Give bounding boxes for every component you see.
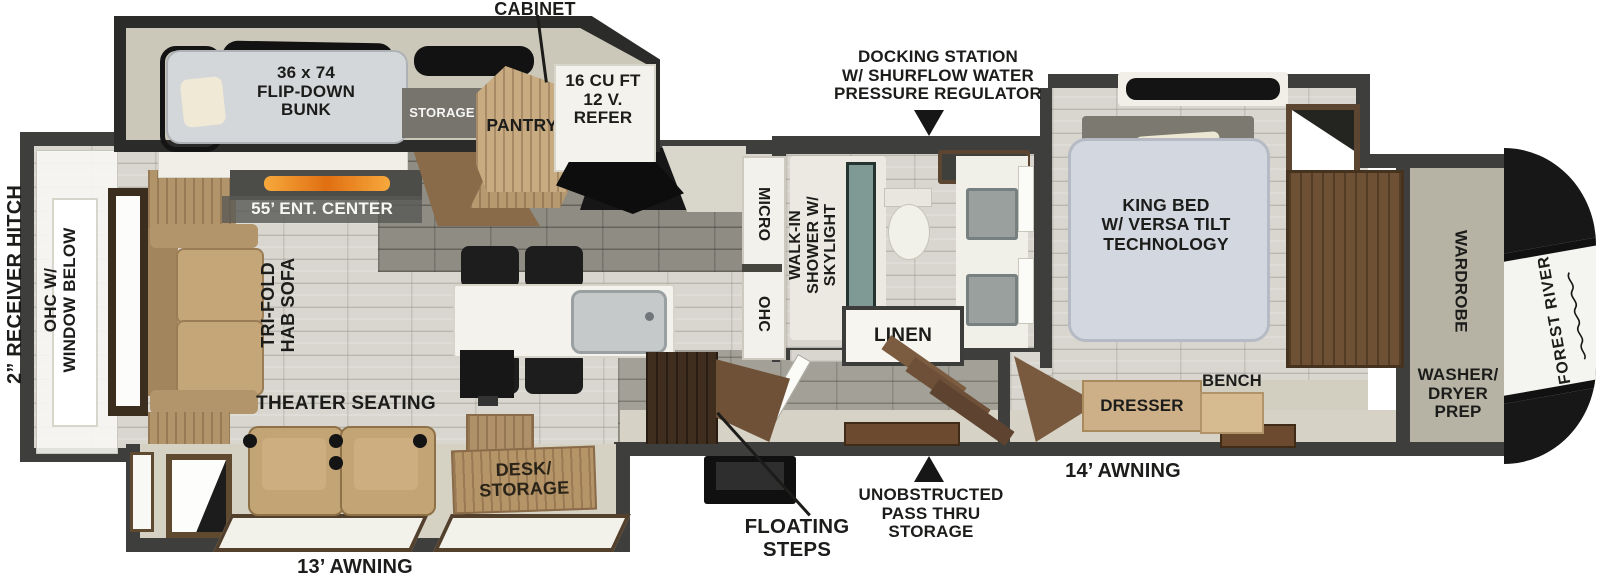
- left-window-pane: [116, 196, 140, 406]
- cupholder: [329, 434, 343, 448]
- awning-13-label: 13’ AWNING: [280, 556, 430, 580]
- bench-label: BENCH: [1186, 372, 1278, 390]
- refrigerator-label: 16 CU FT 12 V. REFER: [558, 72, 648, 132]
- wardrobe-label: WARDROBE: [1442, 196, 1478, 366]
- sofa-back: [148, 228, 178, 396]
- cupholder: [329, 456, 343, 470]
- bath-window: [1018, 166, 1034, 232]
- sofa-arm-bottom: [150, 390, 258, 414]
- bunk-label: 36 x 74 FLIP-DOWN BUNK: [232, 64, 380, 126]
- desk-storage: DESK/ STORAGE: [451, 446, 597, 515]
- floating-steps-wood: [646, 352, 718, 444]
- seat-cushion: [262, 438, 326, 490]
- ohc-window-label: OHC W/ WINDOW BELOW: [42, 198, 98, 402]
- bedroom-left-wall: [1040, 88, 1052, 368]
- micro-label: MICRO: [746, 166, 780, 262]
- bedroom-top-window: [1126, 78, 1280, 100]
- cupholder: [413, 434, 427, 448]
- bath-window: [1018, 258, 1034, 324]
- ent-center-label: 55’ ENT. CENTER: [222, 196, 422, 223]
- cupholder: [243, 434, 257, 448]
- floorplan-stage: OHC W/ WINDOW BELOW TRI-FOLD HAB SOFA 55…: [0, 0, 1600, 583]
- dresser: DRESSER: [1082, 380, 1202, 432]
- shower-label: WALK-IN SHOWER W/ SKYLIGHT: [787, 160, 853, 330]
- cabinet-below-sofa: [148, 412, 230, 446]
- seat-cushion: [354, 438, 418, 490]
- window-sash: [172, 460, 226, 532]
- awning-14-label: 14’ AWNING: [1038, 460, 1208, 486]
- toilet-bowl: [888, 204, 930, 260]
- docking-station-label: DOCKING STATION W/ SHURFLOW WATER PRESSU…: [818, 48, 1058, 108]
- docking-arrow-icon: [914, 110, 944, 136]
- desk-monitor: [460, 350, 514, 398]
- sofa-cushion: [176, 248, 264, 324]
- sofa-cushion: [176, 320, 264, 396]
- vanity-sink: [966, 188, 1018, 240]
- passthru-hatch: [844, 422, 960, 446]
- slide-side-window: [130, 452, 154, 532]
- slide-bottom-window: [433, 514, 631, 552]
- theater-seating-label: THEATER SEATING: [248, 394, 444, 416]
- ohc-label: OHC: [748, 276, 778, 352]
- appliance-divider: [742, 264, 782, 272]
- passthru-label: UNOBSTRUCTED PASS THRU STORAGE: [836, 486, 1026, 546]
- front-cap: FOREST RIVER: [1504, 148, 1596, 464]
- brand-band: FOREST RIVER: [1504, 232, 1596, 404]
- slide-left-window: [166, 454, 232, 538]
- sofa-label: TRI-FOLD HAB SOFA: [259, 230, 311, 380]
- storage-cabinet: STORAGE: [402, 88, 482, 138]
- bench: [1200, 392, 1264, 434]
- receiver-hitch-label: 2” RECEIVER HITCH: [0, 165, 30, 405]
- front-top-wall: [1362, 154, 1512, 168]
- kitchen-sink: [571, 290, 667, 354]
- bar-stool: [461, 246, 519, 288]
- passthru-arrow-icon: [914, 456, 944, 482]
- desk-monitor-stand: [478, 396, 498, 406]
- bunk-pillow: [180, 76, 227, 128]
- washer-dryer-label: WASHER/ DRYER PREP: [1404, 366, 1512, 442]
- bar-stool: [525, 246, 583, 288]
- bar-stool: [525, 352, 583, 394]
- fireplace-flame: [264, 176, 390, 191]
- slide-bottom-window: [213, 514, 429, 552]
- closet-sliding-doors: [1286, 170, 1404, 368]
- sofa-arm-top: [150, 224, 258, 248]
- vanity-sink: [966, 274, 1018, 326]
- cabinet-label: CABINET: [470, 0, 600, 18]
- sink-faucet: [645, 312, 654, 321]
- king-bed-label: KING BED W/ VERSA TILT TECHNOLOGY: [1078, 196, 1254, 260]
